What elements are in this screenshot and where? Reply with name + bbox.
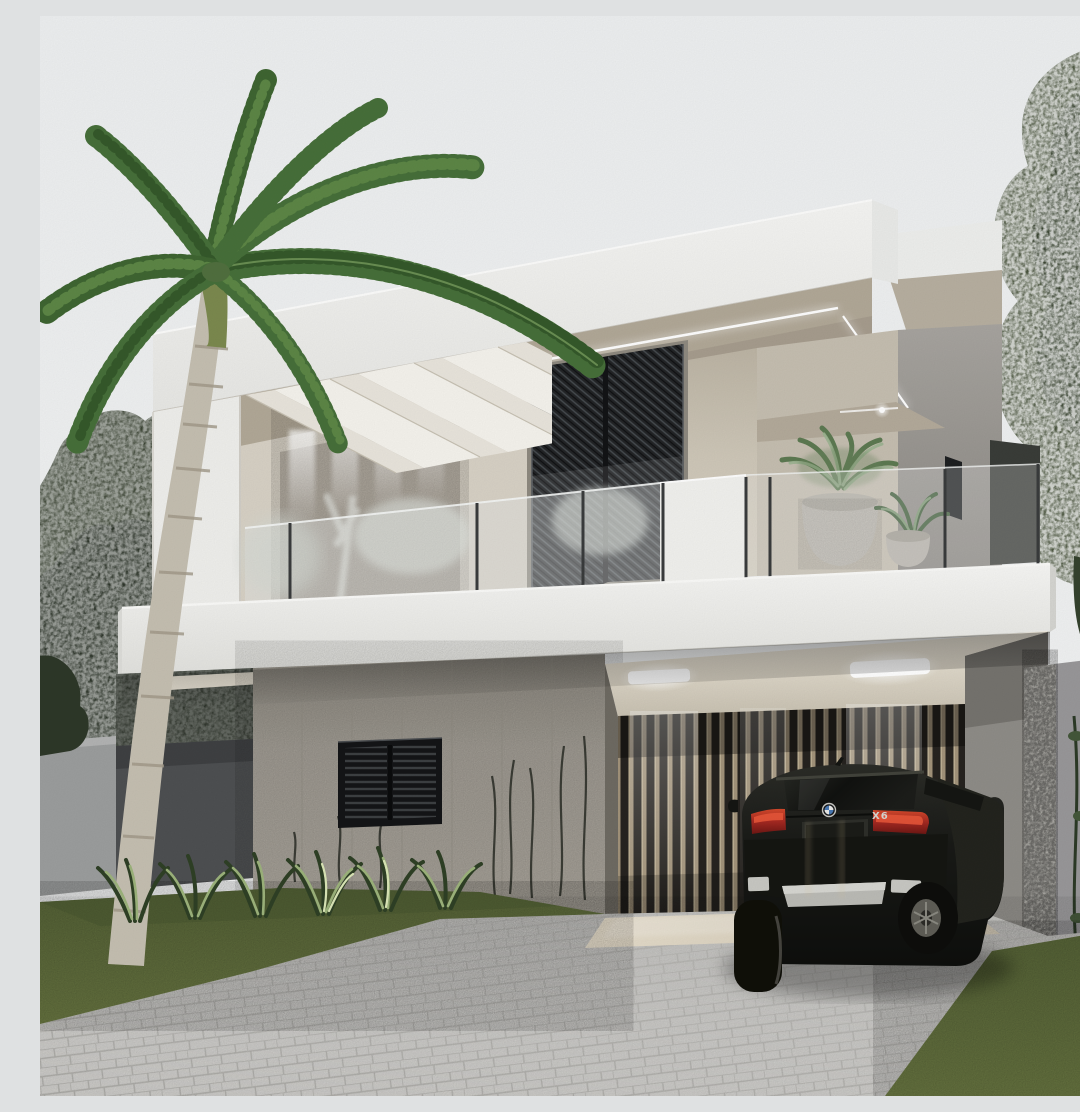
architectural-render: X6 <box>40 16 1080 1096</box>
photo-grain <box>40 16 1080 1096</box>
